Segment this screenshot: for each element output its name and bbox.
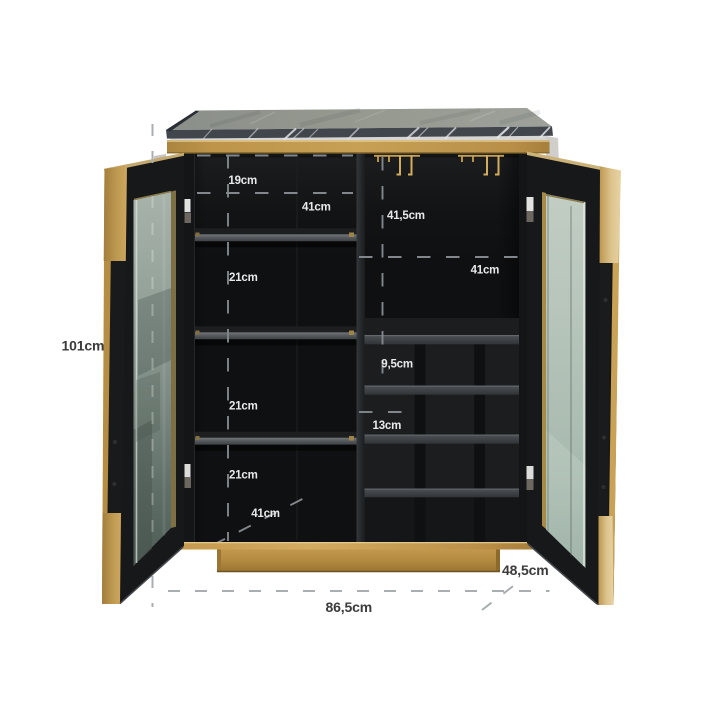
svg-text:21cm: 21cm — [229, 272, 258, 284]
svg-text:48,5cm: 48,5cm — [502, 562, 549, 578]
svg-text:41cm: 41cm — [471, 265, 500, 277]
svg-text:19cm: 19cm — [228, 175, 257, 187]
svg-text:41cm: 41cm — [302, 202, 331, 214]
svg-text:41,5cm: 41,5cm — [387, 210, 425, 222]
svg-text:86,5cm: 86,5cm — [326, 599, 373, 615]
svg-text:13cm: 13cm — [373, 420, 402, 432]
svg-text:41cm: 41cm — [251, 508, 280, 520]
svg-text:21cm: 21cm — [229, 470, 258, 482]
svg-text:9,5cm: 9,5cm — [381, 359, 413, 371]
svg-text:101cm: 101cm — [62, 338, 105, 354]
svg-text:21cm: 21cm — [229, 401, 258, 413]
